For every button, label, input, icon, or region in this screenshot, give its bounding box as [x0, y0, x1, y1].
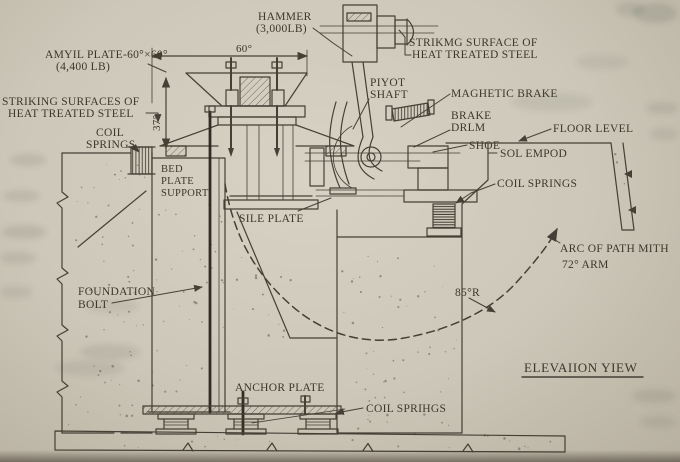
- label-sole-plate: SILE PLATE: [239, 213, 304, 225]
- dashed-arc-of-path: [225, 184, 557, 340]
- label-shoe: SHOE: [469, 140, 500, 152]
- label-pivot-shaft-1: PIYOT: [370, 77, 405, 89]
- photo-edge-shadow: [0, 450, 680, 462]
- label-hammer-weight: (3,000LB): [256, 23, 307, 35]
- label-striking-surfaces-left-1: STRIKING SURFACES OF: [2, 96, 139, 108]
- label-foundation-bolt-1: FOUNDATION: [78, 286, 156, 298]
- label-foundation-bolt-2: BOLT: [78, 299, 108, 311]
- label-radius-85: 85°R: [455, 287, 480, 299]
- base-and-anchor: [55, 392, 565, 452]
- dim-height-37: 37°: [151, 115, 163, 131]
- label-arc-of-path-2: 72° ARM: [562, 259, 609, 271]
- label-anvil-plate-2: (4,400 LB): [56, 61, 110, 73]
- label-coil-springs-bottom: COIL SPRIHGS: [366, 403, 446, 415]
- label-bed-plate-support-2: PLATE: [161, 176, 194, 187]
- label-floor-level: FLOOR LEVEL: [553, 123, 633, 135]
- view-title: ELEVAIION YIEW: [524, 360, 638, 375]
- label-solenoid: SOL EMPOD: [500, 148, 567, 160]
- label-arc-of-path-1: ARC OF PATH MITH: [560, 243, 669, 255]
- right-block-and-floor: [337, 143, 636, 433]
- label-striking-surfaces-left-2: HEAT TREATED STEEL: [8, 108, 134, 120]
- label-magnetic-brake: MAGHETIC BRAKE: [451, 88, 558, 100]
- label-coil-springs-left-2: SPRINGS: [86, 139, 135, 151]
- label-anvil-plate-1: AMYIL PLATE-60°×60°: [45, 49, 168, 61]
- label-coil-springs-left-1: COIL: [96, 127, 124, 139]
- label-strike-surface-top-2: HEAT TREATED STEEL: [412, 49, 538, 61]
- label-pivot-shaft-2: SHAFT: [370, 89, 408, 101]
- label-strike-surface-top-1: STRIKMG SURFACE OF: [409, 37, 538, 49]
- label-coil-springs-right: COIL SPRINGS: [497, 178, 577, 190]
- label-brake-drum-2: DRLM: [451, 122, 485, 134]
- scanned-drawing-sheet: HAMMER (3,000LB) STRIKMG SURFACE OF HEAT…: [0, 0, 680, 462]
- label-bed-plate-support-1: BED: [161, 164, 183, 175]
- label-bed-plate-support-3: SUPPORT: [161, 188, 209, 199]
- dim-width-60: 60°: [236, 43, 252, 55]
- label-hammer: HAMMER: [258, 11, 312, 23]
- label-anchor-plate: ANCHOR PLATE: [235, 382, 325, 394]
- linework: [55, 5, 643, 452]
- label-brake-drum-1: BRAKE: [451, 110, 491, 122]
- elevation-drawing: HAMMER (3,000LB) STRIKMG SURFACE OF HEAT…: [0, 0, 680, 462]
